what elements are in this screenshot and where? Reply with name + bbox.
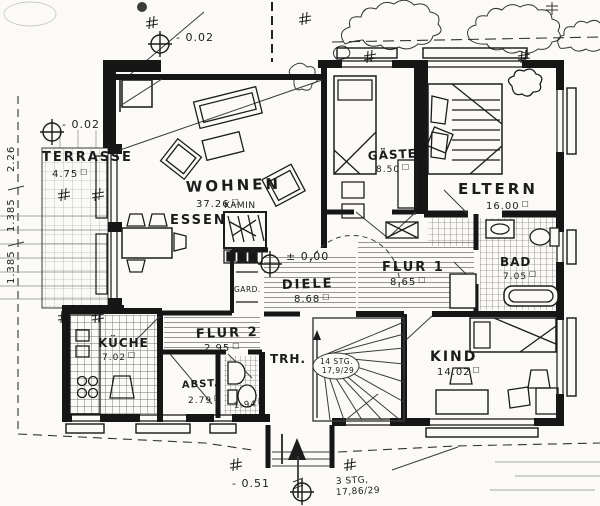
kind-label: KIND — [430, 349, 477, 365]
eltern-label: ELTERN — [458, 180, 538, 198]
sofa — [194, 87, 263, 129]
ceiling-slope-lines — [120, 79, 322, 150]
gaeste-label: GÄSTE — [367, 145, 417, 163]
walkway-lines — [490, 462, 600, 490]
level-entry: ± 0.00 — [286, 250, 329, 263]
gaeste-area: 8.50□ — [376, 162, 410, 175]
dim-left-2: 1.385 — [6, 198, 17, 232]
entry-porch — [272, 434, 330, 498]
entry-steps-line2: 17,86/29 — [336, 486, 381, 498]
plant-icon — [508, 69, 541, 96]
coffee-table — [202, 132, 244, 161]
level-terrace: - 0.02 — [62, 118, 100, 131]
survey-marker-icon — [40, 119, 64, 145]
essen-label: ESSEN — [170, 213, 227, 228]
leader-line-steps — [392, 447, 458, 470]
diele-label: DIELE — [282, 276, 334, 293]
dim-tick — [344, 458, 356, 471]
flur1-label: FLUR 1 — [382, 260, 445, 275]
dim-left-1: 2.26 — [6, 146, 17, 172]
gaeste-bed — [334, 76, 376, 218]
kueche-label: KÜCHE — [98, 335, 149, 350]
fireplace — [224, 212, 266, 263]
level-outside: - 0.51 — [232, 477, 270, 490]
gard-label: GARD. — [234, 285, 261, 294]
stair-note-line1: 14 STG. — [320, 357, 353, 366]
bad-floor-2 — [428, 218, 480, 246]
entry-steps-line1: 3 STG, — [336, 475, 369, 487]
terrasse-label: TERRASSE — [42, 150, 133, 165]
tree-icon — [333, 0, 600, 60]
dim-tick — [146, 16, 158, 29]
survey-marker-icon — [148, 31, 172, 57]
bad-label: BAD — [500, 255, 531, 269]
survey-marker-icon — [290, 479, 314, 505]
dim-tick — [299, 12, 311, 25]
armchair — [161, 139, 202, 180]
stair-note-line2: 17,9/29 — [322, 366, 354, 375]
abst-label: ABST. — [182, 378, 219, 391]
terrace-extension-lines-v — [60, 130, 96, 148]
dim-tick — [230, 458, 242, 471]
trh-label: TRH. — [270, 352, 306, 366]
kind-area: 14.02□ — [437, 365, 480, 378]
wohnen-label: WOHNEN — [186, 175, 282, 196]
eltern-area: 16.00□ — [486, 199, 529, 212]
floor-plan-drawing: TERRASSE 4.75□ WOHNEN 37.26□ ESSEN KAMIN… — [0, 0, 600, 506]
flur2-label: FLUR 2 — [196, 325, 259, 342]
level-upper: - 0.02 — [176, 31, 214, 44]
kamin-label: KAMIN — [224, 201, 256, 211]
ink-blot — [137, 2, 147, 12]
wardrobe-shelves — [236, 262, 258, 302]
kind-furniture — [436, 318, 558, 414]
floor-plan-page: { "units": { "m2": "\u25A1" }, "rooms": … — [0, 0, 600, 506]
pencil-smudge — [4, 2, 56, 26]
flur2-area: 2.95□ — [204, 341, 240, 354]
dim-left-3: 1.385 — [6, 250, 17, 284]
